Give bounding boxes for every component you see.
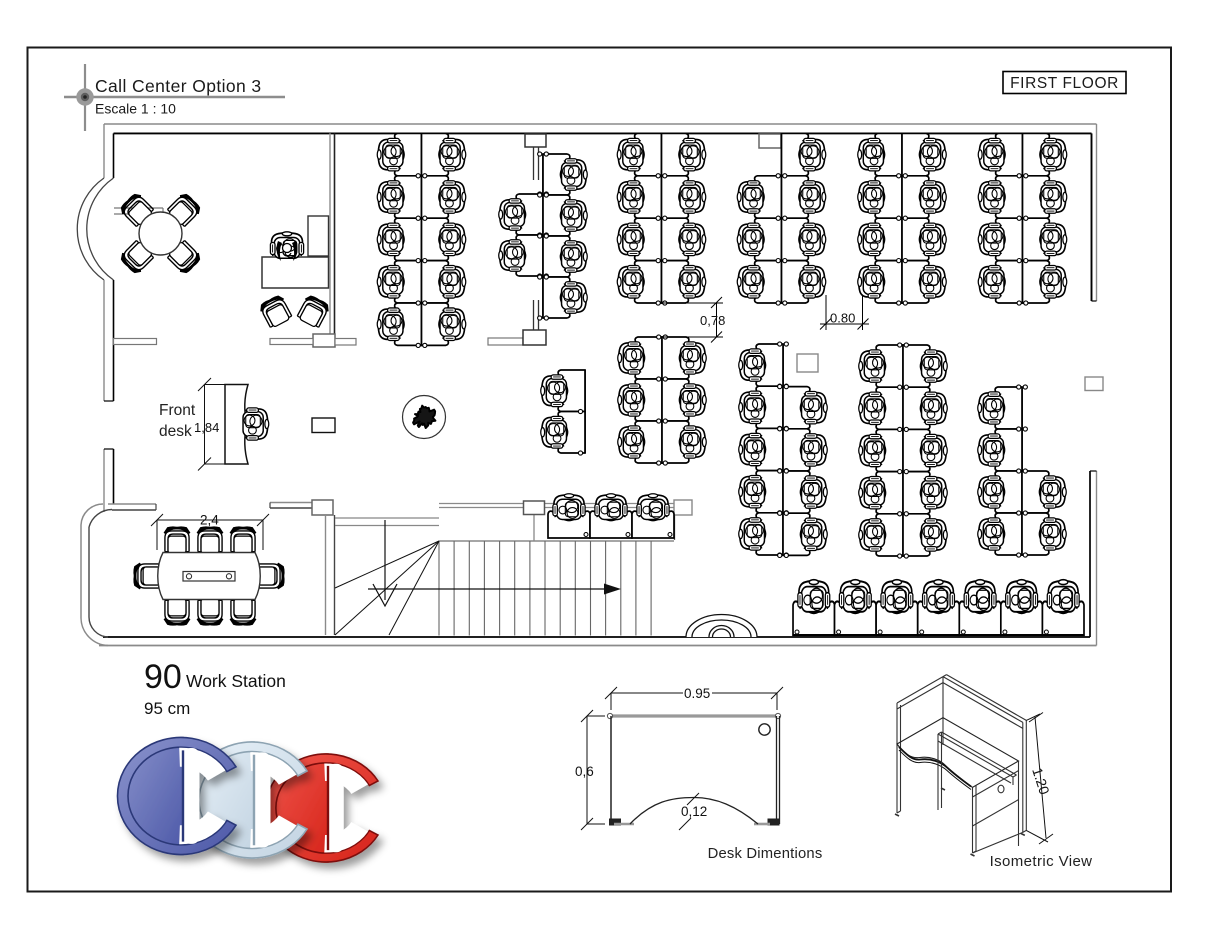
- svg-text:1,84: 1,84: [194, 420, 219, 435]
- svg-text:0,12: 0,12: [681, 804, 707, 819]
- svg-text:Front: Front: [159, 402, 196, 419]
- svg-text:Isometric View: Isometric View: [990, 853, 1093, 870]
- svg-text:Desk Dimentions: Desk Dimentions: [708, 846, 823, 862]
- svg-text:0,6: 0,6: [575, 764, 594, 779]
- svg-text:FIRST FLOOR: FIRST FLOOR: [1010, 75, 1119, 92]
- svg-text:95 cm: 95 cm: [144, 699, 190, 718]
- svg-text:0.80: 0.80: [830, 311, 855, 326]
- svg-text:Escale 1 : 10: Escale 1 : 10: [95, 101, 176, 117]
- svg-text:2,4: 2,4: [200, 513, 219, 528]
- svg-text:90: 90: [144, 658, 182, 696]
- svg-text:Work Station: Work Station: [186, 671, 286, 691]
- svg-text:0.95: 0.95: [684, 686, 710, 701]
- svg-text:desk: desk: [159, 423, 192, 440]
- svg-text:0,78: 0,78: [700, 313, 725, 328]
- svg-text:Call Center Option 3: Call Center Option 3: [95, 76, 262, 96]
